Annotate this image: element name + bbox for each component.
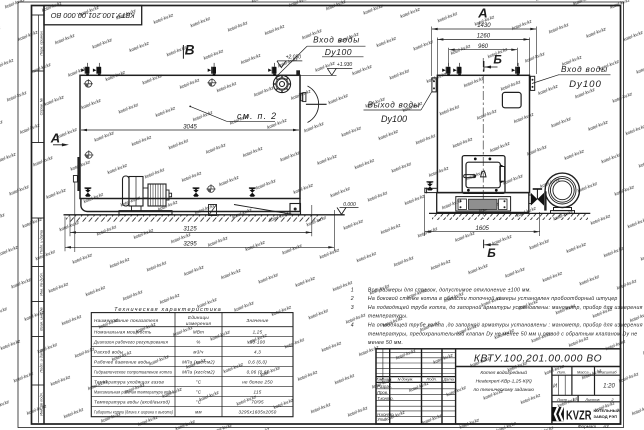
svg-text:по техническому заданию: по техническому заданию [473,387,534,393]
svg-text:Гидравлическое сопротивление к: Гидравлическое сопротивление котла [94,370,172,375]
svg-text:Габариты котла (длина х ширина: Габариты котла (длина х ширина х высота) [94,410,173,415]
svg-text:0,06 (0,6): 0,06 (0,6) [247,370,269,375]
svg-text:1430: 1430 [477,23,491,29]
svg-text:Dу100: Dу100 [381,114,407,124]
svg-text:3125: 3125 [183,227,197,233]
svg-text:Инв. № подл.: Инв. № подл. [40,392,44,416]
svg-text:960: 960 [478,44,489,50]
svg-text:Лит.: Лит. [556,369,566,374]
svg-text:°С: °С [196,380,202,385]
svg-text:температуры, предохранительный: температуры, предохранительный клапан Dу… [368,330,637,337]
svg-text:°С: °С [196,400,202,405]
svg-text:3295: 3295 [183,242,197,248]
svg-text:Листов: Листов [584,397,599,402]
svg-text:КОТЕЛЬНЫЙ: КОТЕЛЬНЫЙ [594,408,620,413]
svg-text:Вход воды: Вход воды [561,65,608,74]
svg-text:1605: 1605 [476,226,490,232]
svg-text:В: В [185,43,195,58]
svg-text:115: 115 [254,390,262,395]
svg-text:Наименование показателя: Наименование показателя [94,318,159,323]
svg-text:KVZR: KVZR [566,408,592,422]
svg-text:%: % [196,340,200,345]
svg-text:1:20: 1:20 [603,384,615,390]
svg-text:МПа (кгс/см2): МПа (кгс/см2) [182,370,215,375]
svg-text:Dу100: Dу100 [325,47,352,57]
svg-text:Все размеры для справок, допус: Все размеры для справок, допустимое откл… [368,287,531,293]
svg-text:На отводящей трубе котла ,до з: На отводящей трубе котла ,до запорной ар… [368,322,643,329]
svg-text:Диапазон рабочего регулировани: Диапазон рабочего регулирования [93,340,168,345]
svg-text:температуры.: температуры. [368,314,408,320]
svg-text:Лист: Лист [556,397,568,402]
svg-text:На подводящей трубе котла, до: На подводящей трубе котла, до запорной а… [368,304,643,311]
svg-text:Техническая характеристика: Техническая характеристика [114,307,222,313]
svg-text:Т.контр.: Т.контр. [377,396,394,401]
svg-text:Утв.: Утв. [377,417,386,422]
svg-text:Масса: Масса [577,369,589,374]
svg-text:ЗАВОД РЭП: ЗАВОД РЭП [594,414,618,419]
svg-text:Разраб.: Разраб. [377,384,392,389]
svg-text:3045: 3045 [183,123,197,130]
svg-text:Котел водогрейный: Котел водогрейный [480,369,527,376]
svg-text:+2.050: +2.050 [286,54,302,60]
svg-text:Б: Б [487,246,496,260]
svg-text:Выход воды: Выход воды [367,101,420,110]
svg-text:1260: 1260 [477,34,491,40]
svg-text:Значение: Значение [246,318,268,323]
svg-text:Дата: Дата [443,377,455,382]
svg-text:Номинальная мощность: Номинальная мощность [94,330,152,335]
svg-text:N докум.: N докум. [398,377,414,382]
svg-text:МВт: МВт [193,330,204,335]
svg-text:Перв. примен.: Перв. примен. [40,30,44,55]
svg-text:мм: мм [195,410,202,415]
svg-text:3295х1605х2050: 3295х1605х2050 [238,410,276,415]
svg-text:Инв. № дубл.: Инв. № дубл. [40,272,44,295]
svg-text:Б: Б [493,52,502,66]
svg-text:А: А [477,6,487,21]
svg-text:Рабочее давление воды: Рабочее давление воды [94,360,150,365]
svg-text:Heatexpert-КВр-1,25-К(К): Heatexpert-КВр-1,25-К(К) [476,379,533,385]
svg-text:1,25: 1,25 [253,330,263,335]
svg-text:Единицы: Единицы [188,315,209,320]
svg-text:1: 1 [351,287,354,293]
svg-text:70/95: 70/95 [251,400,264,405]
svg-text:Взам. инв. №: Взам. инв. № [40,307,44,330]
svg-text:И: И [553,384,557,390]
svg-text:менее 50 мм.: менее 50 мм. [368,340,403,346]
svg-text:Температура воды (вход/выход): Температура воды (вход/выход) [94,400,170,405]
svg-text:Лист: Лист [380,377,392,382]
svg-text:2: 2 [350,296,354,302]
svg-text:Формат: Формат [578,424,596,429]
svg-text:Подп.: Подп. [427,377,437,382]
svg-text:А3: А3 [602,424,609,429]
svg-text:Расход воды: Расход воды [94,350,124,355]
svg-text:0,6 (6,0): 0,6 (6,0) [248,360,267,365]
svg-text:не более 250: не более 250 [242,380,273,385]
svg-text:0.000: 0.000 [343,202,356,208]
svg-text:+1.930: +1.930 [337,62,353,68]
svg-text:Подп. и дата: Подп. и дата [40,230,44,254]
svg-text:3: 3 [351,305,354,311]
svg-text:Вход воды: Вход воды [313,36,360,45]
svg-text:КВТУ.100.201.00.000 ВО: КВТУ.100.201.00.000 ВО [50,11,135,18]
svg-text:КВТУ.100.201.00.000 ВО: КВТУ.100.201.00.000 ВО [474,354,602,365]
svg-text:4: 4 [351,323,354,329]
svg-text:Температура уходящих газов: Температура уходящих газов [94,380,164,385]
svg-text:50-100: 50-100 [250,340,266,345]
svg-text:°С: °С [196,390,202,395]
svg-text:4,3: 4,3 [254,350,261,355]
svg-text:Подп. и дата: Подп. и дата [40,349,44,373]
svg-text:Максимальная рабочая температу: Максимальная рабочая температура воды [94,390,173,395]
svg-text:см. п. 2: см. п. 2 [237,111,277,121]
svg-text:1: 1 [572,397,574,402]
svg-text:Справ. №: Справ. № [40,98,44,115]
svg-text:м3/ч: м3/ч [193,350,204,355]
svg-text:На боковой стенке котла в обла: На боковой стенке котла в области топочн… [368,295,618,302]
svg-text:Пров.: Пров. [377,390,388,395]
svg-text:измерения: измерения [186,321,212,326]
svg-text:Dу100: Dу100 [569,79,602,90]
svg-text:А: А [50,131,60,146]
svg-text:Масштаб: Масштаб [598,369,617,374]
svg-text:МПа (кгс/см2): МПа (кгс/см2) [182,360,215,365]
